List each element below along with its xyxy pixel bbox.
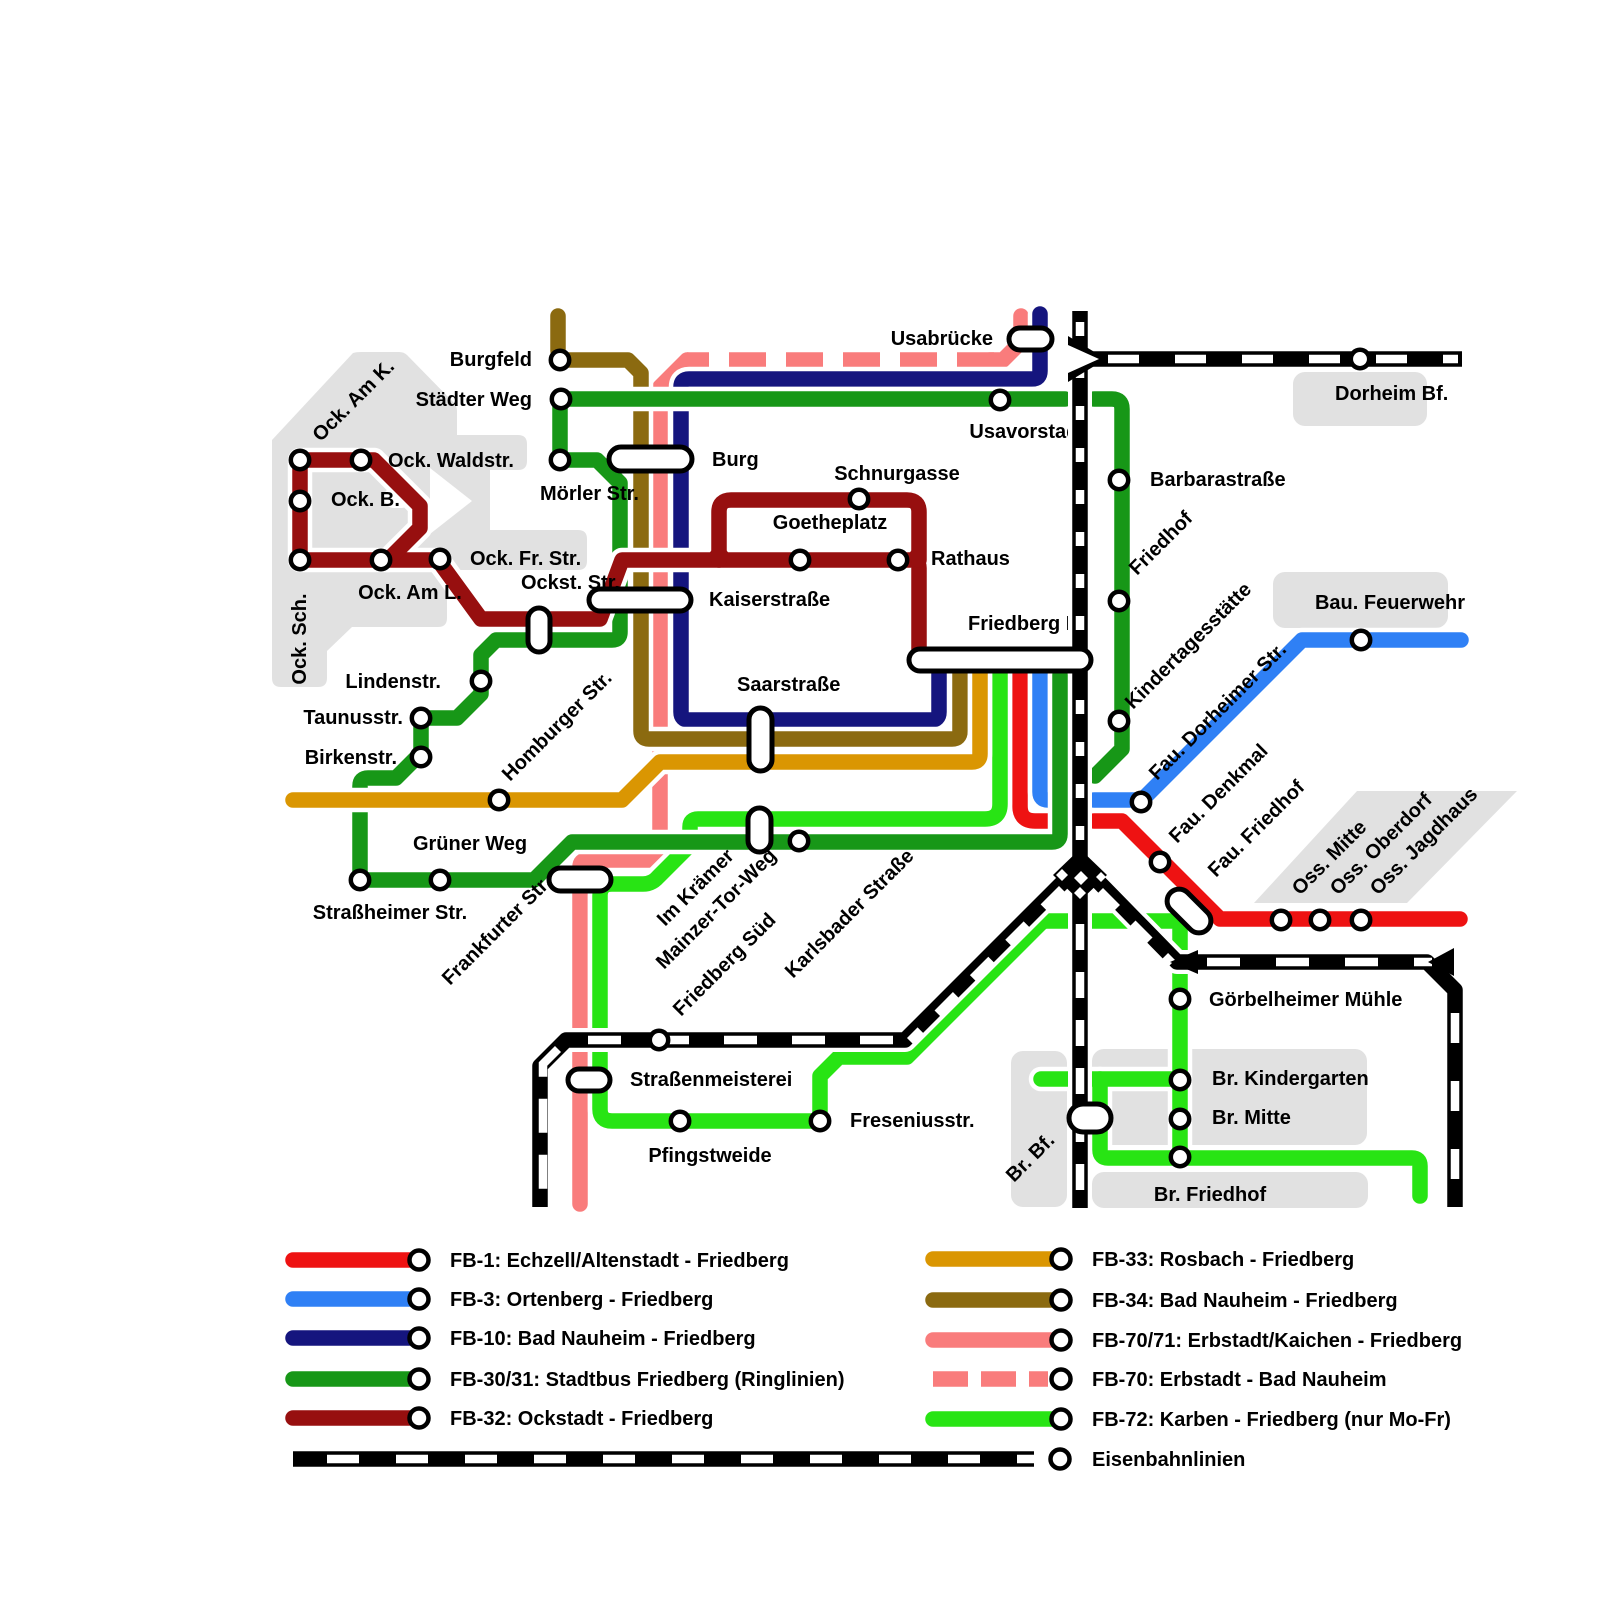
svg-text:Goetheplatz: Goetheplatz <box>773 512 887 534</box>
svg-text:Barbarastraße: Barbarastraße <box>1150 469 1286 491</box>
svg-text:Ock. Am L.: Ock. Am L. <box>358 582 462 604</box>
svg-text:Pfingstweide: Pfingstweide <box>648 1145 771 1167</box>
svg-text:Görbelheimer Mühle: Görbelheimer Mühle <box>1209 989 1402 1011</box>
svg-text:Bau. Feuerwehr: Bau. Feuerwehr <box>1315 592 1465 614</box>
svg-text:Birkenstr.: Birkenstr. <box>305 747 397 769</box>
svg-text:Ock. Fr. Str.: Ock. Fr. Str. <box>470 548 581 570</box>
svg-text:FB-33: Rosbach - Friedberg: FB-33: Rosbach - Friedberg <box>1092 1249 1354 1271</box>
svg-text:FB-34: Bad Nauheim - Friedberg: FB-34: Bad Nauheim - Friedberg <box>1092 1290 1398 1312</box>
svg-text:Ockst. Str.: Ockst. Str. <box>521 572 620 594</box>
svg-text:Freseniusstr.: Freseniusstr. <box>850 1110 975 1132</box>
svg-text:Mörler Str.: Mörler Str. <box>540 483 639 505</box>
svg-text:Kaiserstraße: Kaiserstraße <box>709 589 830 611</box>
svg-text:Saarstraße: Saarstraße <box>737 674 840 696</box>
svg-text:Grüner Weg: Grüner Weg <box>413 833 527 855</box>
svg-text:Br. Friedhof: Br. Friedhof <box>1154 1184 1267 1206</box>
svg-text:FB-70/71: Erbstadt/Kaichen - F: FB-70/71: Erbstadt/Kaichen - Friedberg <box>1092 1330 1462 1352</box>
svg-text:Straßheimer Str.: Straßheimer Str. <box>313 902 468 924</box>
svg-text:FB-32: Ockstadt - Friedberg: FB-32: Ockstadt - Friedberg <box>450 1408 713 1430</box>
svg-text:FB-1: Echzell/Altenstadt - Fri: FB-1: Echzell/Altenstadt - Friedberg <box>450 1250 789 1272</box>
svg-text:Ock. B.: Ock. B. <box>331 489 400 511</box>
svg-text:Taunusstr.: Taunusstr. <box>303 707 403 729</box>
svg-text:FB-30/31: Stadtbus Friedberg (: FB-30/31: Stadtbus Friedberg (Ringlinien… <box>450 1369 844 1391</box>
svg-text:Usabrücke: Usabrücke <box>891 328 993 350</box>
svg-text:Städter Weg: Städter Weg <box>416 389 532 411</box>
svg-text:Burg: Burg <box>712 449 759 471</box>
svg-text:Burgfeld: Burgfeld <box>450 349 532 371</box>
svg-text:Schnurgasse: Schnurgasse <box>834 463 960 485</box>
svg-text:FB-72: Karben - Friedberg (nur: FB-72: Karben - Friedberg (nur Mo-Fr) <box>1092 1409 1451 1431</box>
svg-text:Ock. Waldstr.: Ock. Waldstr. <box>388 450 514 472</box>
svg-text:FB-70: Erbstadt - Bad Nauheim: FB-70: Erbstadt - Bad Nauheim <box>1092 1369 1386 1391</box>
svg-text:FB-10: Bad Nauheim - Friedberg: FB-10: Bad Nauheim - Friedberg <box>450 1328 756 1350</box>
svg-text:Br. Mitte: Br. Mitte <box>1212 1107 1291 1129</box>
svg-text:Lindenstr.: Lindenstr. <box>345 671 441 693</box>
svg-text:Br. Kindergarten: Br. Kindergarten <box>1212 1068 1369 1090</box>
svg-text:Dorheim Bf.: Dorheim Bf. <box>1335 383 1448 405</box>
svg-text:Ock. Sch.: Ock. Sch. <box>289 593 311 684</box>
svg-text:Straßenmeisterei: Straßenmeisterei <box>630 1069 792 1091</box>
svg-text:Rathaus: Rathaus <box>931 548 1010 570</box>
svg-text:Usavorstadt: Usavorstadt <box>969 421 1085 443</box>
svg-text:FB-3: Ortenberg - Friedberg: FB-3: Ortenberg - Friedberg <box>450 1289 713 1311</box>
svg-text:Eisenbahnlinien: Eisenbahnlinien <box>1092 1449 1245 1471</box>
